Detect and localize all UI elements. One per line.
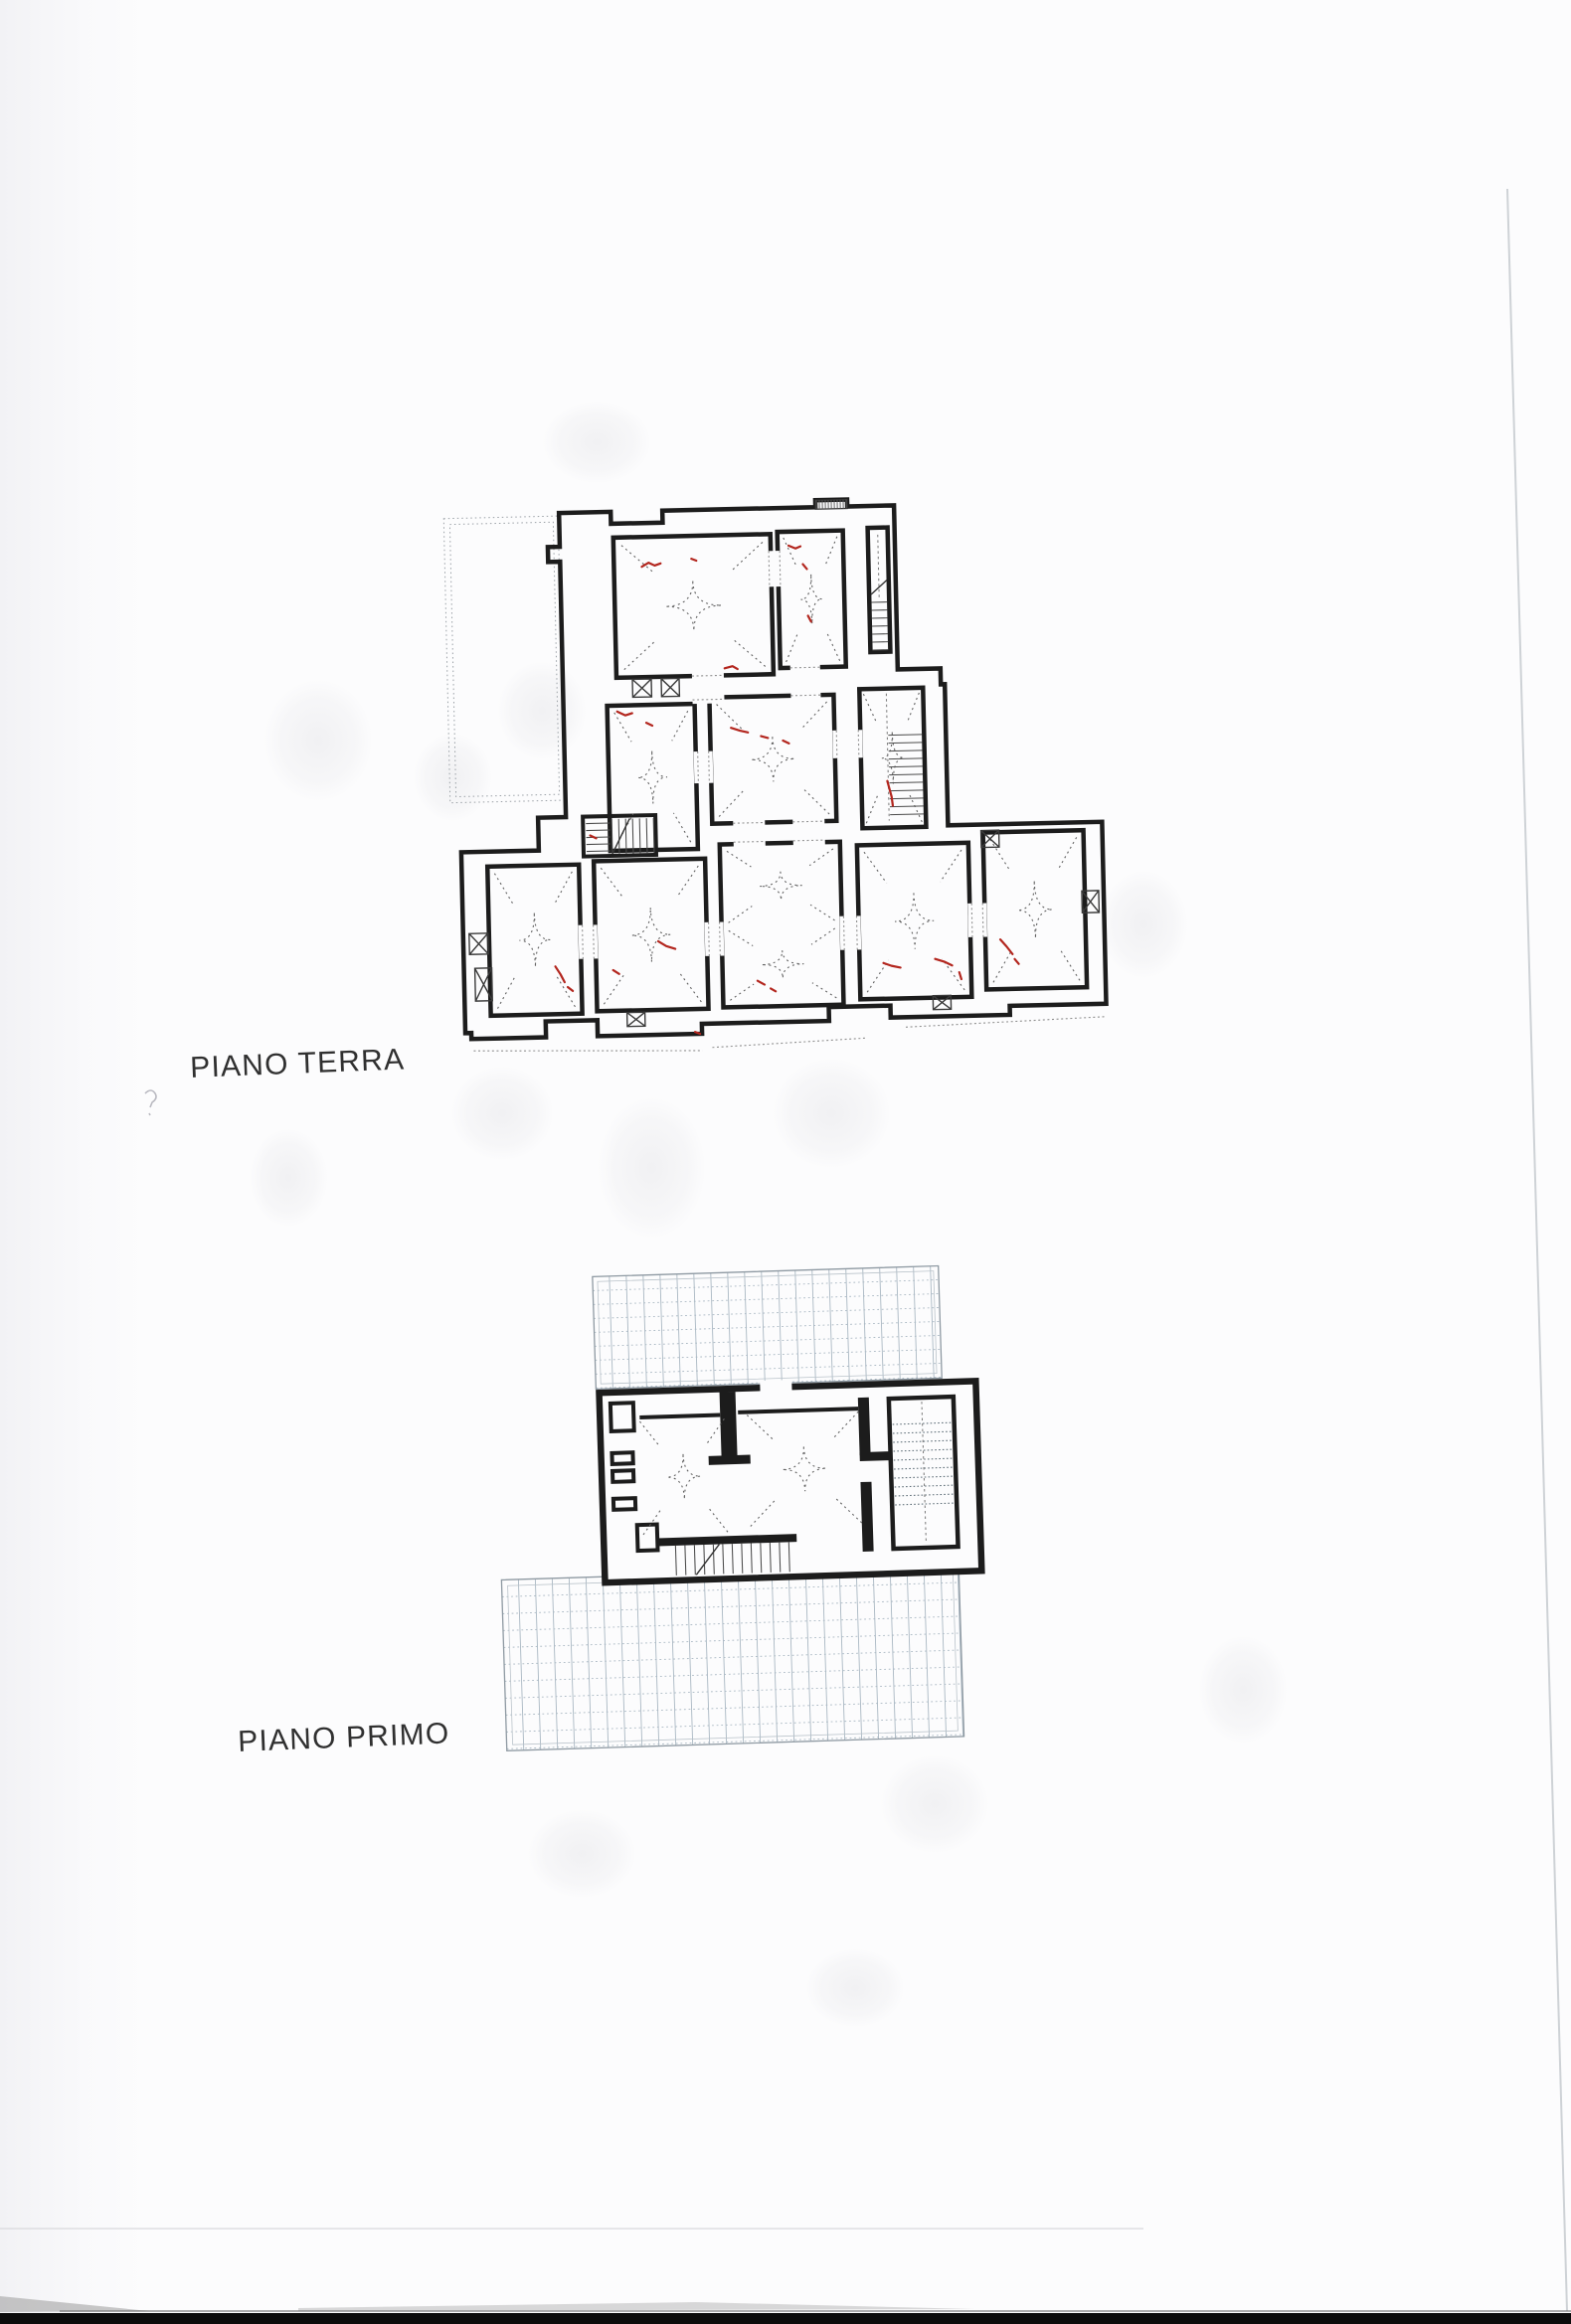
room-walls xyxy=(480,523,1088,1015)
door-openings xyxy=(462,544,1105,1056)
scan-shadow-wedge xyxy=(0,2296,149,2312)
vault-pattern xyxy=(729,928,837,1000)
vault-pattern xyxy=(990,837,1080,982)
scan-bottom-bar xyxy=(0,2313,1571,2324)
scanned-drawing-sheet: PIANO TERRA PIANO PRIMO xyxy=(0,0,1571,2324)
vault-pattern xyxy=(784,537,840,662)
vault-pattern xyxy=(864,850,964,992)
scan-edge-line xyxy=(1507,189,1567,2311)
ink-smudge xyxy=(145,1090,156,1115)
vault-pattern xyxy=(494,872,575,1009)
scan-shadow-streak xyxy=(298,2302,974,2311)
building-first-floor xyxy=(599,1374,981,1582)
staircase-top-right xyxy=(870,535,889,650)
drawing-canvas xyxy=(0,0,1571,2324)
floor-plan-piano-primo xyxy=(492,1264,987,1750)
vault-pattern xyxy=(717,702,830,816)
vault-pattern xyxy=(601,866,701,1004)
scan-smudges xyxy=(145,401,1288,2028)
vault-pattern xyxy=(621,542,766,669)
terrace-bottom xyxy=(501,1566,963,1750)
floor-plan-piano-terra xyxy=(443,494,1107,1057)
vault-pattern xyxy=(727,849,835,922)
terrace-top xyxy=(593,1265,942,1389)
